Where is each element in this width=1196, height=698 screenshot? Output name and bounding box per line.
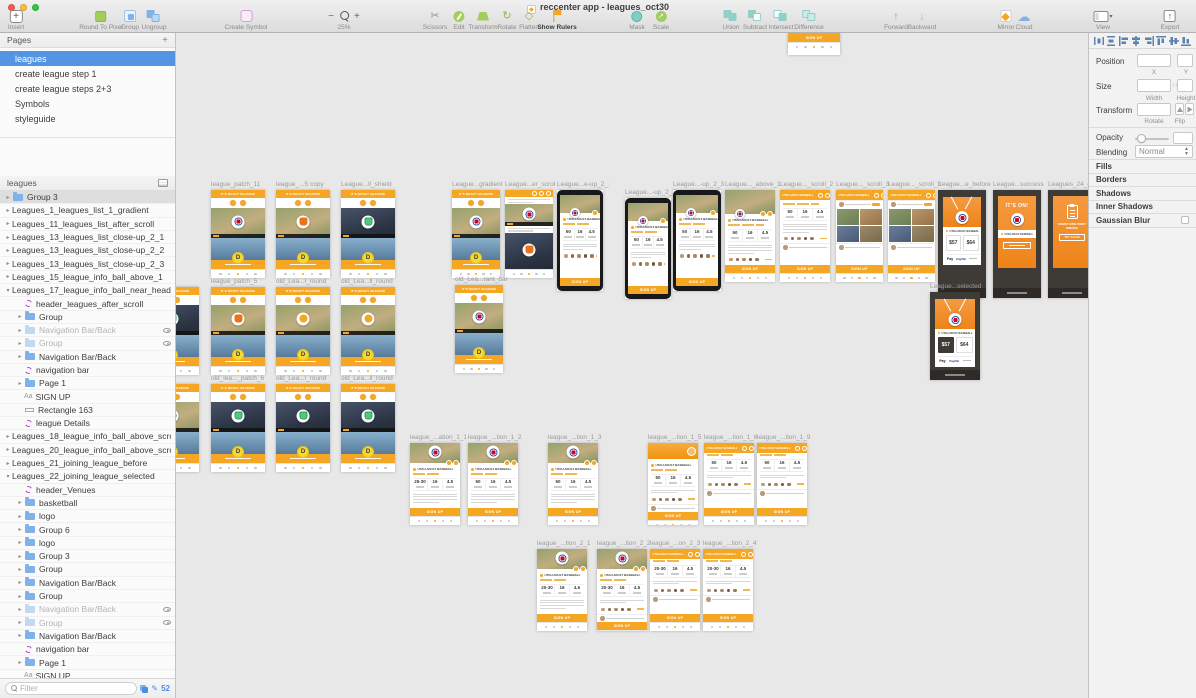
artboard-label[interactable]: League...ll_shield xyxy=(341,181,401,188)
layer-row[interactable]: ▸Leagues_13_leagues_list_close-up_2_2 xyxy=(0,244,175,257)
artboard[interactable]: League...e-up_2_1UTAH ADULT BASEBALL5016… xyxy=(557,190,603,291)
artboard-label[interactable]: League...gradient xyxy=(452,181,506,188)
artboard-content: UTAH ADULT BASEBALL50164.5SIGN UP xyxy=(648,443,698,525)
disclosure-triangle-icon[interactable]: ▸ xyxy=(16,340,24,347)
section-borders[interactable]: Borders xyxy=(1089,173,1196,187)
opacity-field[interactable] xyxy=(1173,132,1193,144)
mini-description xyxy=(703,579,753,586)
toolbar-rotate-button[interactable]: ↻Rotate xyxy=(497,9,516,31)
disclosure-triangle-icon[interactable]: ▸ xyxy=(4,260,12,267)
artboard-label[interactable]: league_...ation_1_1 xyxy=(410,434,466,441)
disclosure-triangle-icon[interactable]: ▸ xyxy=(16,499,24,506)
toolbar-label: Create Symbol xyxy=(225,24,268,31)
toolbar-scale-button[interactable]: Scale xyxy=(653,9,669,31)
align-bottom-icon[interactable] xyxy=(1180,35,1192,47)
disclosure-triangle-icon[interactable]: ▸ xyxy=(4,207,12,214)
toolbar-label: Export xyxy=(1161,24,1180,31)
disclosure-triangle-icon[interactable]: ▸ xyxy=(4,220,12,227)
artboard-label[interactable]: league_...5 copy xyxy=(276,181,336,188)
mini-video-thumb xyxy=(211,402,265,432)
toolbar-scissors-button[interactable]: ✂Scissors xyxy=(423,9,448,31)
mini-avatars-row xyxy=(757,480,807,489)
toolbar-label: Transform xyxy=(468,24,497,31)
disclosure-triangle-icon[interactable]: ▸ xyxy=(16,553,24,560)
view-icon: ▾ xyxy=(1093,9,1112,23)
mini-description xyxy=(725,243,775,255)
size-width-field[interactable] xyxy=(1137,79,1171,92)
artboard-label[interactable]: League..._above_1 xyxy=(725,181,781,188)
artboard-label[interactable]: Leagues_24_error xyxy=(1048,181,1088,188)
artboard-content: UTAH ADULT BASEBALL$57$64PayPayPal xyxy=(930,292,980,380)
layer-row[interactable]: ▸Navigation Bar/Back xyxy=(0,351,175,364)
mini-tab-bar xyxy=(537,622,587,631)
layer-row[interactable]: ▸Leagues_18_league_info_ball_above_scrol… xyxy=(0,430,175,443)
layer-row[interactable]: league Details xyxy=(0,417,175,430)
artboard[interactable]: league_...tion_1_5UTAH ADULT BASEBALL501… xyxy=(648,443,698,525)
mini-video-thumb xyxy=(341,208,395,238)
artboard-content: IT'S DRAFT SEASON!D xyxy=(341,287,395,375)
artboard[interactable]: League...gradientIT'S DRAFT SEASON!D xyxy=(452,190,500,278)
mini-tab-bar xyxy=(211,366,265,375)
toolbar-edit-button[interactable]: Edit xyxy=(453,9,464,31)
disclosure-triangle-icon[interactable]: ▸ xyxy=(16,327,24,334)
blending-select[interactable]: Normal ▲▼ xyxy=(1135,145,1193,158)
folder-icon xyxy=(25,539,35,546)
mini-draft-banner: IT'S DRAFT SEASON! xyxy=(211,384,265,392)
page-item-leagues[interactable]: leagues xyxy=(0,51,175,66)
mini-tab-bar xyxy=(211,463,265,472)
layer-row[interactable]: Rectangle 163 xyxy=(0,404,175,417)
artboard-label[interactable]: League...-up_2_2 xyxy=(625,189,677,196)
folder-icon xyxy=(25,579,35,586)
pages-panel-title: Pages xyxy=(7,35,31,45)
toolbar-backward-button[interactable]: ↓Backward xyxy=(908,9,937,31)
artboard[interactable]: ...l_shieldIT'S DRAFT SEASON!D xyxy=(176,287,199,375)
toolbar-view-button[interactable]: ▾View xyxy=(1093,9,1112,31)
artboard[interactable]: league_...tion_1_9UTAH ADULT BASEBALL501… xyxy=(757,443,807,525)
paypal-label: PayPal xyxy=(956,257,966,261)
mini-stats-row: 20-30164.5 xyxy=(653,565,697,578)
artboard[interactable]: old_Lea...ll_roundIT'S DRAFT SEASON!D xyxy=(341,384,395,472)
artboard-label[interactable]: league_...tion_2_2 xyxy=(597,540,653,547)
toolbar-create-symbol-button[interactable]: Create Symbol xyxy=(225,9,268,31)
artboard-label[interactable]: old_Lea...ll_round xyxy=(341,375,401,382)
artboard-label[interactable]: League..._scroll_3 xyxy=(836,181,889,188)
layer-row[interactable]: ▸Leagues_15_league_info_ball_above_1 xyxy=(0,271,175,284)
artboard[interactable]: league_...ation_1_1UTAH ADULT BASEBALL25… xyxy=(410,443,460,525)
toolbar-show-rulers-button[interactable]: Show Rulers xyxy=(537,9,576,31)
toolbar-forward-button[interactable]: ↑Forward xyxy=(884,9,908,31)
disclosure-triangle-icon[interactable]: ▸ xyxy=(4,273,12,280)
position-x-field[interactable] xyxy=(1137,54,1171,67)
disclosure-triangle-icon[interactable]: ▸ xyxy=(4,234,12,241)
opacity-slider-knob[interactable] xyxy=(1137,134,1146,143)
layer-row[interactable]: ▸Group xyxy=(0,337,175,350)
disclosure-triangle-icon[interactable]: ▾ xyxy=(4,287,12,294)
page-item-create-league-steps-2-3[interactable]: create league steps 2+3 xyxy=(0,81,175,96)
layer-name: header_Venues xyxy=(36,485,96,495)
toolbar-label: Flatten xyxy=(519,24,539,31)
artboard[interactable]: League...er_scrol xyxy=(505,190,553,278)
artboard[interactable]: League..._scroll_3UTAH ADULT BASEBALLSIG… xyxy=(888,190,935,282)
page-item-styleguide[interactable]: styleguide xyxy=(0,111,175,126)
disclosure-triangle-icon[interactable]: ▸ xyxy=(16,526,24,533)
mini-draft-banner: IT'S DRAFT SEASON! xyxy=(341,287,395,295)
mini-tab-bar xyxy=(703,622,753,631)
artboard[interactable]: league_...tion_2_4UTAH ADULT BASEBALL20-… xyxy=(703,549,753,631)
toolbar-ungroup-button[interactable]: Ungroup xyxy=(142,9,167,31)
artboard[interactable]: league_...on_2_3UTAH ADULT BASEBALL20-30… xyxy=(650,549,700,631)
distribute-horizontally-icon[interactable] xyxy=(1093,35,1105,47)
mini-description xyxy=(648,488,698,495)
align-left-icon[interactable] xyxy=(1118,35,1130,47)
layer-row[interactable]: ▸Leagues_1_leagues_list_1_gradient xyxy=(0,204,175,217)
disclosure-triangle-icon[interactable]: ▸ xyxy=(16,593,24,600)
team-badge-icon xyxy=(735,209,745,219)
page-item-create-league-step-1[interactable]: create league step 1 xyxy=(0,66,175,81)
layer-row[interactable]: ▸Group xyxy=(0,617,175,630)
layer-row[interactable]: ▾Leagues_17_league_info_ball_near_headli… xyxy=(0,284,175,297)
artboard-content: UTAH ADULT BASEBALL25-30164.5SIGN UP xyxy=(410,443,460,525)
layer-row[interactable]: ▸Page 1 xyxy=(0,377,175,390)
size-label: Size xyxy=(1096,82,1112,91)
folder-icon xyxy=(25,313,35,320)
disclosure-triangle-icon[interactable]: ▸ xyxy=(16,606,24,613)
disclosure-triangle-icon[interactable]: ▸ xyxy=(16,619,24,626)
zoom-in-button[interactable]: + xyxy=(354,11,360,22)
layer-row[interactable]: ▾Leagues_22_joining_league_selected xyxy=(0,470,175,483)
flip-vertical-button[interactable] xyxy=(1185,103,1194,115)
artboard-label[interactable]: ...l_shield xyxy=(176,278,205,285)
artboard[interactable]: League..._scroll_2UTAH ADULT BASEBALL501… xyxy=(780,190,830,282)
artboard[interactable]: old_Lea...rant_barIT'S DRAFT SEASON!D xyxy=(455,285,503,373)
layer-row[interactable]: ▸basketball xyxy=(0,497,175,510)
artboard[interactable]: ...gue_listIT'S DRAFT SEASON!D xyxy=(176,384,199,472)
mini-sign-up-button: SIGN UP xyxy=(788,33,840,42)
mini-avatars-row xyxy=(650,586,700,595)
toolbar-mask-button[interactable]: Mask xyxy=(629,9,645,31)
artboard[interactable]: league_...tion_1_3UTAH ADULT BASEBALL501… xyxy=(548,443,598,525)
toolbar-group-button[interactable]: Group xyxy=(121,9,139,31)
artboard[interactable]: old_lea..._patch_6IT'S DRAFT SEASON!D xyxy=(211,384,265,472)
artboard-label[interactable]: league_...tion_1_8 xyxy=(704,434,760,441)
left-sidebar: Pages + leaguescreate league step 1creat… xyxy=(0,33,176,698)
mini-tab-bar xyxy=(548,516,598,525)
artboard-label[interactable]: league_...tion_1_9 xyxy=(757,434,813,441)
layer-row[interactable]: ▸Leagues_11_leagues_list_after_scroll xyxy=(0,218,175,231)
toolbar-intersect-button[interactable]: Intersect xyxy=(769,9,794,31)
artboard-label[interactable]: league_...tion_2_1 xyxy=(537,540,593,547)
folder-icon xyxy=(25,632,35,639)
disclosure-triangle-icon[interactable]: ▸ xyxy=(4,247,12,254)
align-right-icon[interactable] xyxy=(1143,35,1155,47)
layer-row[interactable]: ▸Group xyxy=(0,563,175,576)
artboard-label[interactable]: old_Lea...rant_bar xyxy=(455,276,509,283)
layer-name: Group 6 xyxy=(39,525,70,535)
folder-icon xyxy=(25,606,35,613)
mini-draft-banner: IT'S DRAFT SEASON! xyxy=(276,287,330,295)
position-y-field[interactable] xyxy=(1177,54,1193,67)
size-height-field[interactable] xyxy=(1177,79,1193,92)
layer-row[interactable]: ▸Group xyxy=(0,311,175,324)
toolbar-subtract-button[interactable]: Subtract xyxy=(743,9,767,31)
mini-tab-bar xyxy=(650,622,700,631)
mini-orange-header: UTAH ADULT BASEBALL xyxy=(888,190,935,200)
team-badge-icon xyxy=(616,552,629,565)
artboard[interactable]: League..._scroll_3UTAH ADULT BASEBALLSIG… xyxy=(836,190,883,282)
artboard-label[interactable]: old_Lea...l_round xyxy=(276,375,336,382)
mini-avatars-row xyxy=(597,605,647,614)
artboard-label[interactable]: league_...on_2_3 xyxy=(650,540,706,547)
mini-promo-banner: D xyxy=(211,454,265,463)
artboard[interactable]: League...e_beforeUTAH ADULT BASEBALL$57$… xyxy=(938,190,986,298)
toolbar-union-button[interactable]: Union xyxy=(723,9,740,31)
artboard-label[interactable]: League...er_scrol xyxy=(505,181,559,188)
mini-filter-circles xyxy=(341,295,395,305)
pages-spacer xyxy=(0,138,175,176)
layer-row[interactable]: ▸Navigation Bar/Back xyxy=(0,577,175,590)
artboard[interactable]: League..._above_1UTAH ADULT BASEBALL5016… xyxy=(725,190,775,282)
section-shadows[interactable]: Shadows xyxy=(1089,186,1196,200)
mask-icon xyxy=(629,9,645,23)
layer-row[interactable]: ▸Leagues_20_league_info_ball_above_scrol… xyxy=(0,444,175,457)
disclosure-triangle-icon[interactable]: ▾ xyxy=(4,473,12,480)
disclosure-triangle-icon[interactable]: ▸ xyxy=(4,433,12,440)
toolbar-insert-button[interactable]: +Insert xyxy=(8,9,24,31)
layer-name: Leagues_11_leagues_list_after_scroll xyxy=(12,219,154,229)
layer-row[interactable]: ▸logo xyxy=(0,510,175,523)
mini-description xyxy=(650,579,700,586)
disclosure-triangle-icon[interactable]: ▸ xyxy=(16,539,24,546)
artboard[interactable]: league_patch_11IT'S DRAFT SEASON!D xyxy=(211,190,265,278)
toolbar-flatten-button[interactable]: ◇Flatten xyxy=(519,9,539,31)
artboard-label[interactable]: league_...tion_1_5 xyxy=(648,434,704,441)
layer-row[interactable]: AaSIGN UP xyxy=(0,390,175,403)
disclosure-triangle-icon[interactable]: ▸ xyxy=(16,632,24,639)
layer-name: Group 3 xyxy=(27,192,58,202)
toolbar-label: Insert xyxy=(8,24,24,31)
layer-row[interactable]: ▸Navigation Bar/Back xyxy=(0,630,175,643)
artboard[interactable]: League...successIT'S ON!UTAH ADULT BASEB… xyxy=(993,190,1041,298)
layer-row[interactable]: header_leagues_after_scroll xyxy=(0,297,175,310)
toolbar-mirror-button[interactable]: Mirror xyxy=(998,9,1015,31)
mini-description xyxy=(676,242,718,251)
artboard[interactable]: SIGN UP xyxy=(788,33,840,55)
mini-filter-circles xyxy=(176,392,199,402)
eye-icon[interactable] xyxy=(163,620,171,625)
artboard-content: UTAH ADULT BASEBALL20-30164.5SIGN UP xyxy=(537,549,587,631)
disclosure-triangle-icon[interactable]: ▸ xyxy=(16,659,24,666)
disclosure-triangle-icon[interactable]: ▸ xyxy=(16,566,24,573)
inspector: Position X Y Size ∷ Width Height Transfo… xyxy=(1088,33,1196,698)
layer-row[interactable]: navigation bar xyxy=(0,364,175,377)
mini-video-thumb xyxy=(341,305,395,335)
add-page-button[interactable]: + xyxy=(162,35,168,46)
artboard-label[interactable]: League...e-up_2_1 xyxy=(557,181,609,188)
canvas[interactable]: league_patch_11IT'S DRAFT SEASON!Dleague… xyxy=(176,33,1088,698)
section-fills[interactable]: Fills xyxy=(1089,159,1196,173)
transform-icon xyxy=(468,9,497,23)
mini-tab-bar xyxy=(788,42,840,51)
artboard-label[interactable]: League..._scroll_3 xyxy=(888,181,941,188)
team-badge-icon xyxy=(949,313,962,326)
layer-row[interactable]: AaSIGN UP xyxy=(0,670,175,678)
fullscreen-button[interactable] xyxy=(32,4,39,11)
toolbar-label: Forward xyxy=(884,24,908,31)
artboard[interactable]: league_...5 copyIT'S DRAFT SEASON!D xyxy=(276,190,330,278)
flip-horizontal-button[interactable] xyxy=(1175,103,1184,115)
artboard[interactable]: League...-up_2_3UTAH ADULT BASEBALL50164… xyxy=(673,190,721,291)
width-caption: Width xyxy=(1137,95,1171,102)
artboard-label[interactable]: League...e_before xyxy=(938,181,992,188)
disclosure-triangle-icon[interactable]: ▸ xyxy=(4,460,12,467)
team-badge-icon xyxy=(297,312,310,325)
rectangle-layer-icon xyxy=(25,408,34,412)
mini-stats-row: 20-30164.5 xyxy=(706,565,750,578)
layer-row[interactable]: ▸logo xyxy=(0,537,175,550)
layer-row[interactable]: ▸Page 1 xyxy=(0,656,175,669)
artboard[interactable]: old_Lea...l_roundIT'S DRAFT SEASON!D xyxy=(276,287,330,375)
layer-row[interactable]: navigation bar xyxy=(0,643,175,656)
disclosure-triangle-icon[interactable]: ▸ xyxy=(16,313,24,320)
artboard[interactable]: league_...tion_2_2UTAH ADULT BASEBALL20-… xyxy=(597,549,647,631)
artboard[interactable]: league_...tion_1_2UTAH ADULT BASEBALL501… xyxy=(468,443,518,525)
artboard-label[interactable]: League...selected xyxy=(930,283,986,290)
artboard-label[interactable]: ...gue_list xyxy=(176,375,205,382)
mini-sign-up-button: SIGN UP xyxy=(780,265,830,273)
artboard-label[interactable]: league_...tion_1_3 xyxy=(548,434,604,441)
layer-row[interactable]: ▸Leagues_21_joining_league_before xyxy=(0,457,175,470)
toolbar-label: Round To Pixel xyxy=(79,24,123,31)
mini-avatars-row xyxy=(780,234,830,243)
disclosure-triangle-icon[interactable]: ▸ xyxy=(16,513,24,520)
pages-toggle-icon[interactable] xyxy=(140,685,148,693)
layer-row[interactable]: header_Venues xyxy=(0,484,175,497)
artboard-label[interactable]: League..._scroll_2 xyxy=(780,181,836,188)
disclosure-triangle-icon[interactable]: ▸ xyxy=(16,353,24,360)
mini-error-title: SOMETHING WENT WRONG xyxy=(1053,222,1088,230)
artboard[interactable]: Leagues_24_errorSOMETHING WENT WRONGTRY … xyxy=(1048,190,1088,298)
artboard-label[interactable]: league_patch_5 xyxy=(211,278,271,285)
align-center-horizontal-icon[interactable] xyxy=(1130,35,1142,47)
gaussian-blur-checkbox[interactable] xyxy=(1181,216,1189,224)
mini-orange-header: UTAH ADULT BASEBALL xyxy=(836,190,883,200)
zoom-out-button[interactable]: − xyxy=(328,11,334,22)
artboard[interactable]: League...selectedUTAH ADULT BASEBALL$57$… xyxy=(930,292,980,380)
layer-row[interactable]: ▸Group 3 xyxy=(0,550,175,563)
mini-filter-circles xyxy=(341,198,395,208)
team-badge-icon xyxy=(956,211,969,224)
mini-video-thumb xyxy=(276,208,330,238)
artboard-label[interactable]: old_Lea...l_round xyxy=(276,278,336,285)
rotate-field[interactable] xyxy=(1137,103,1171,116)
toolbar-export-button[interactable]: ↑Export xyxy=(1161,9,1180,31)
disclosure-triangle-icon[interactable]: ▸ xyxy=(4,446,12,453)
pages-list: leaguescreate league step 1create league… xyxy=(0,48,175,138)
artboard[interactable]: league_...tion_2_1UTAH ADULT BASEBALL20-… xyxy=(537,549,587,631)
mini-promo-banner: D xyxy=(455,355,503,364)
artboard-content: UTAH ADULT BASEBALL50164.5SIGN UP xyxy=(757,443,807,525)
union-icon xyxy=(723,9,740,23)
layer-row[interactable]: ▸Group xyxy=(0,590,175,603)
mini-video-thumb xyxy=(452,208,500,238)
artboard-label[interactable]: league_...tion_2_4 xyxy=(703,540,759,547)
search-icon xyxy=(11,685,17,692)
layer-row[interactable]: ▸Group 3 xyxy=(0,191,175,204)
size-lock-icon[interactable]: ∷ xyxy=(1173,82,1177,89)
pencil-icon[interactable]: ✎ xyxy=(151,684,158,693)
layer-row[interactable]: ▸Navigation Bar/Back xyxy=(0,603,175,616)
mini-price-option-left: $57 xyxy=(938,337,955,353)
mini-promo-banner: D xyxy=(211,260,265,269)
mini-price-option-left: $57 xyxy=(946,235,962,251)
artboard[interactable]: old_Lea...ll_roundIT'S DRAFT SEASON!D xyxy=(341,287,395,375)
artboard[interactable]: league_patch_5IT'S DRAFT SEASON!D xyxy=(211,287,265,375)
disclosure-triangle-icon[interactable]: ▸ xyxy=(16,380,24,387)
mini-tab-bar xyxy=(276,269,330,278)
artboard-label[interactable]: old_lea..._patch_6 xyxy=(211,375,271,382)
pages-panel-header: Pages + xyxy=(0,33,175,48)
show-rulers-icon xyxy=(537,9,576,23)
mini-tab-bar xyxy=(410,516,460,525)
layer-row[interactable]: ▸Group 6 xyxy=(0,523,175,536)
artboard-label[interactable]: old_Lea...ll_round xyxy=(341,278,401,285)
artboard[interactable]: old_Lea...l_roundIT'S DRAFT SEASON!D xyxy=(276,384,330,472)
disclosure-triangle-icon[interactable]: ▸ xyxy=(16,579,24,586)
toolbar-difference-button[interactable]: Difference xyxy=(794,9,824,31)
filter-input[interactable]: Filter xyxy=(5,682,137,695)
align-middle-icon[interactable] xyxy=(1168,35,1180,47)
distribute-vertically-icon[interactable] xyxy=(1105,35,1117,47)
artboard[interactable]: League...-up_2_2UTAH ADULT BASEBALL50164… xyxy=(625,198,671,299)
artboard-content: IT'S DRAFT SEASON!D xyxy=(276,384,330,472)
eye-icon[interactable] xyxy=(163,607,171,612)
artboard[interactable]: League...ll_shieldIT'S DRAFT SEASON!D xyxy=(341,190,395,278)
x-caption: X xyxy=(1137,69,1171,76)
eye-icon[interactable] xyxy=(163,341,171,346)
mini-sign-up-button: SIGN UP xyxy=(648,512,698,520)
mini-promo-banner: D xyxy=(341,357,395,366)
layer-row[interactable]: ▸Leagues_13_leagues_list_close-up_2_3 xyxy=(0,257,175,270)
mini-sign-up-button: SIGN UP xyxy=(548,508,598,516)
layer-row[interactable]: ▸Navigation Bar/Back xyxy=(0,324,175,337)
mini-draft-banner: IT'S DRAFT SEASON! xyxy=(455,285,503,293)
layer-row[interactable]: ▸Leagues_13_leagues_list_close-up_2_1 xyxy=(0,231,175,244)
filter-bar: Filter ✎ 52 xyxy=(0,678,175,698)
mini-coin-icon: D xyxy=(232,252,244,264)
section-gaussian-blur[interactable]: Gaussian Blur xyxy=(1089,213,1196,227)
artboard-label[interactable]: League...success xyxy=(993,181,1047,188)
toolbar-transform-button[interactable]: Transform xyxy=(468,9,497,31)
section-inner-shadows[interactable]: Inner Shadows xyxy=(1089,200,1196,214)
toolbar-cloud-button[interactable]: ☁Cloud xyxy=(1016,9,1033,31)
artboard-label[interactable]: League...-up_2_3 xyxy=(673,181,727,188)
eye-icon[interactable] xyxy=(163,328,171,333)
page-item-symbols[interactable]: Symbols xyxy=(0,96,175,111)
toolbar-round-to-pixel-button[interactable]: Round To Pixel xyxy=(79,9,123,31)
toolbar-label: Backward xyxy=(908,24,937,31)
symbol-icon xyxy=(24,299,33,308)
artboard-label[interactable]: league_patch_11 xyxy=(211,181,271,188)
align-top-icon[interactable] xyxy=(1155,35,1167,47)
team-badge-icon xyxy=(523,208,536,221)
disclosure-triangle-icon[interactable]: ▸ xyxy=(4,194,12,201)
artboard[interactable]: league_...tion_1_8UTAH ADULT BASEBALL501… xyxy=(704,443,754,525)
artboard-label[interactable]: league_...tion_1_2 xyxy=(468,434,524,441)
layer-name: Group 3 xyxy=(39,551,70,561)
toolbar-label: Scissors xyxy=(423,24,448,31)
symbol-icon xyxy=(24,419,33,428)
